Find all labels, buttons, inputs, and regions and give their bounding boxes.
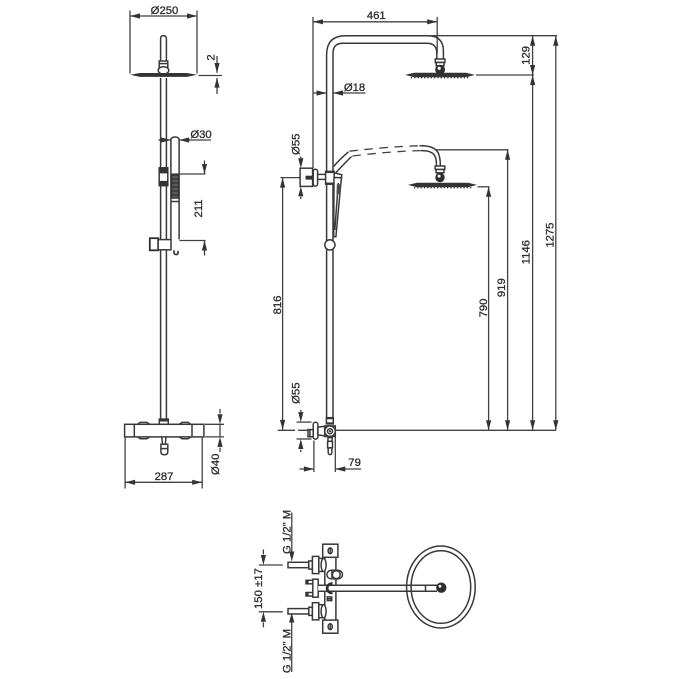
svg-text:150 ±17: 150 ±17 bbox=[253, 568, 265, 609]
svg-text:79: 79 bbox=[348, 457, 361, 469]
svg-text:Ø55: Ø55 bbox=[290, 134, 302, 155]
svg-text:Ø250: Ø250 bbox=[151, 5, 179, 17]
svg-text:919: 919 bbox=[496, 278, 508, 297]
svg-text:Ø55: Ø55 bbox=[290, 383, 302, 404]
svg-text:211: 211 bbox=[193, 199, 205, 217]
svg-text:461: 461 bbox=[367, 10, 386, 22]
svg-text:2: 2 bbox=[206, 54, 218, 60]
svg-text:790: 790 bbox=[478, 299, 490, 318]
svg-text:1146: 1146 bbox=[521, 240, 533, 264]
svg-text:Ø30: Ø30 bbox=[190, 129, 211, 141]
svg-text:816: 816 bbox=[272, 296, 284, 315]
svg-text:Ø40: Ø40 bbox=[210, 454, 222, 475]
svg-text:Ø18: Ø18 bbox=[344, 82, 365, 94]
svg-text:287: 287 bbox=[155, 471, 174, 483]
svg-text:129: 129 bbox=[520, 46, 532, 65]
svg-text:1275: 1275 bbox=[544, 223, 556, 248]
